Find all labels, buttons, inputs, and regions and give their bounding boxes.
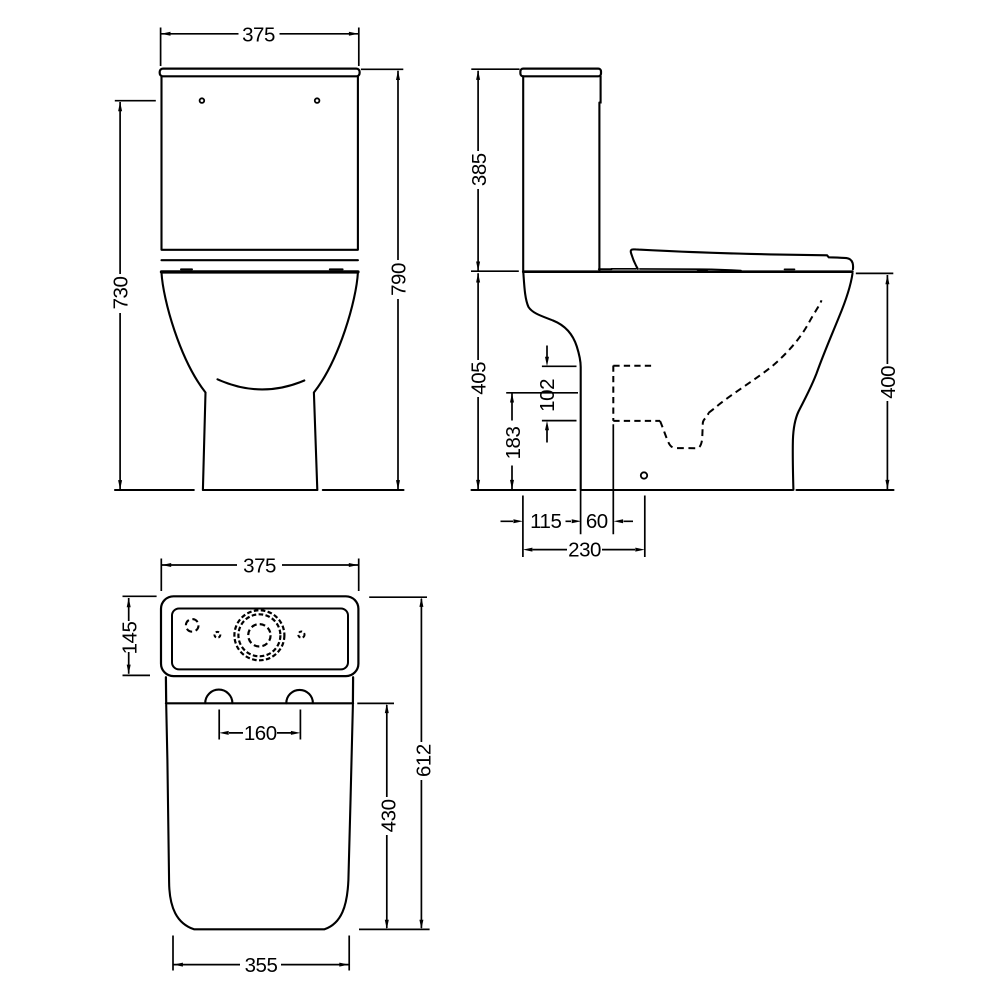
svg-text:230: 230	[568, 538, 601, 561]
svg-text:375: 375	[243, 554, 276, 577]
svg-text:430: 430	[377, 799, 400, 832]
svg-text:60: 60	[586, 510, 608, 533]
svg-text:400: 400	[877, 366, 900, 399]
svg-text:790: 790	[387, 263, 410, 296]
svg-text:385: 385	[468, 153, 491, 186]
svg-text:183: 183	[502, 427, 525, 460]
svg-text:375: 375	[242, 23, 275, 46]
svg-text:612: 612	[412, 744, 435, 777]
svg-text:730: 730	[110, 277, 133, 310]
svg-text:115: 115	[530, 510, 561, 533]
svg-text:355: 355	[245, 954, 278, 977]
svg-text:160: 160	[244, 722, 277, 745]
svg-text:102: 102	[536, 379, 559, 412]
svg-text:145: 145	[119, 622, 142, 655]
svg-text:405: 405	[468, 362, 491, 395]
